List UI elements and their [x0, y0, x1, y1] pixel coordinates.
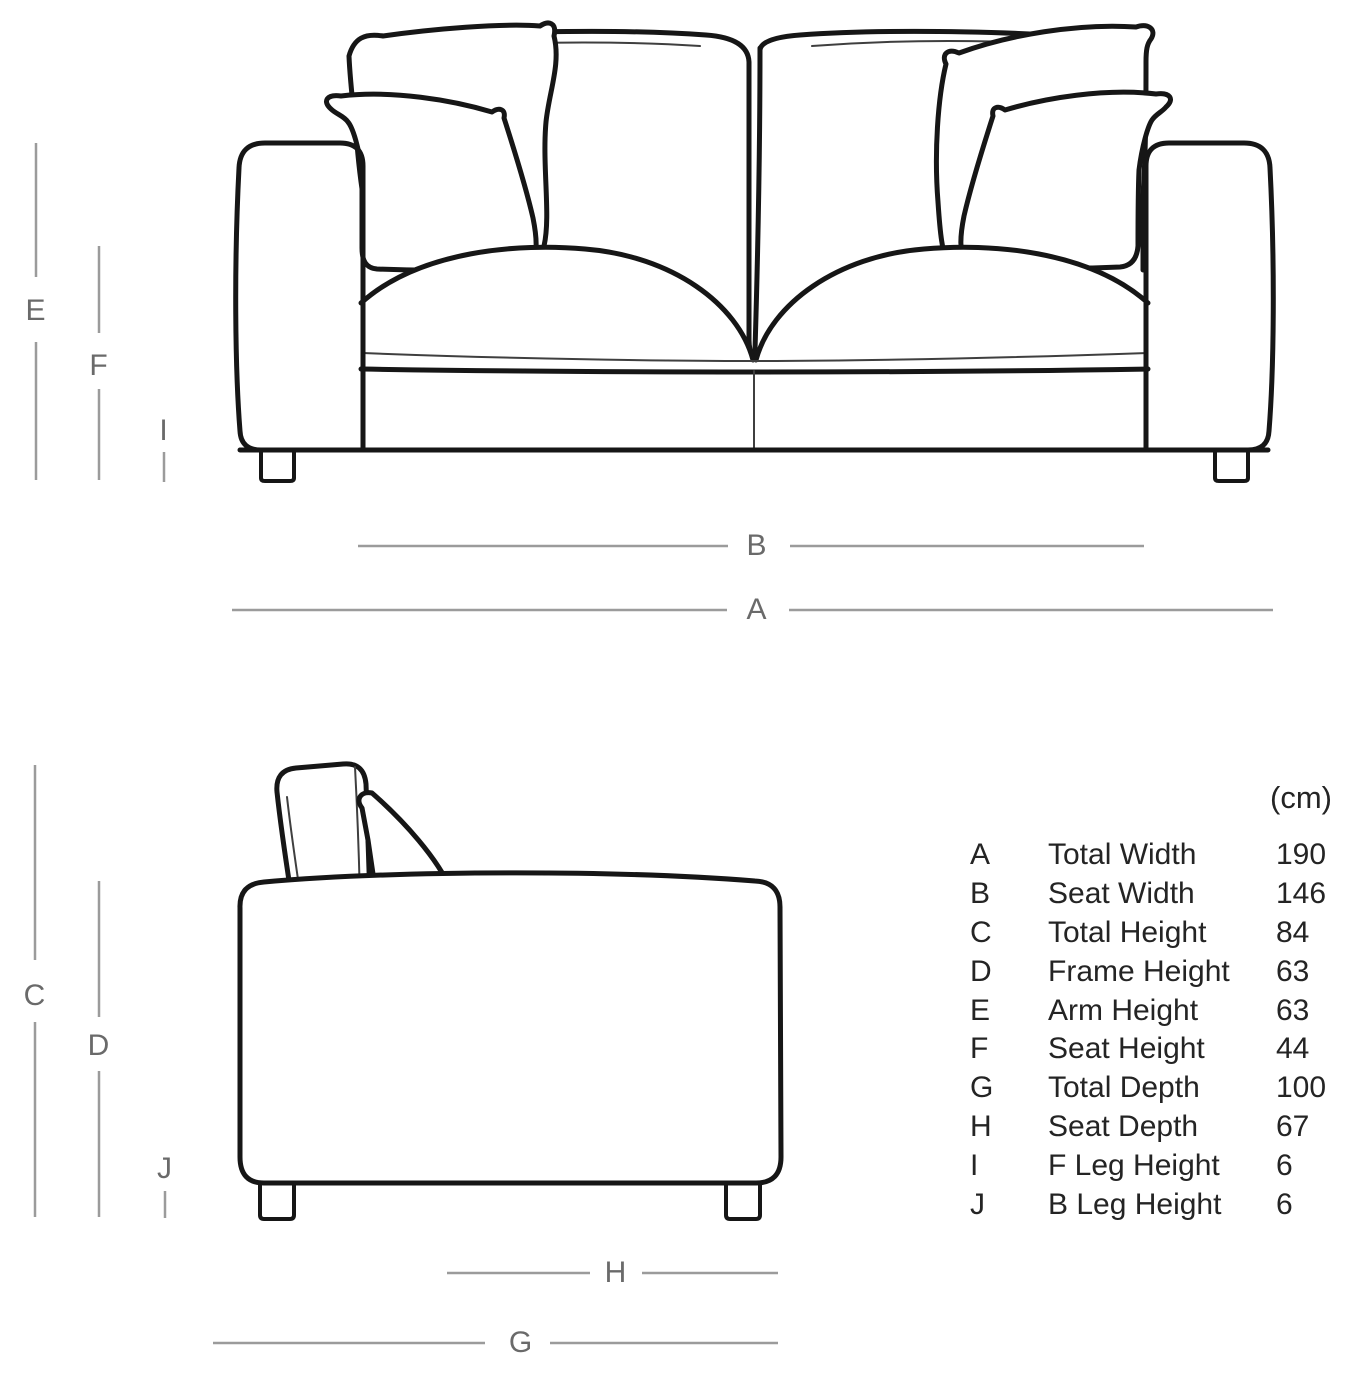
row-letter: B	[970, 877, 1048, 911]
table-row: J B Leg Height 6	[970, 1185, 1338, 1224]
table-row: C Total Height 84	[970, 914, 1338, 953]
row-name: Seat Width	[1048, 877, 1276, 911]
row-letter: G	[970, 1071, 1048, 1105]
row-value: 6	[1276, 1188, 1338, 1222]
row-name: Total Depth	[1048, 1071, 1276, 1105]
row-name: Frame Height	[1048, 955, 1276, 989]
dim-label-b: B	[746, 529, 767, 563]
row-value: 146	[1276, 877, 1338, 911]
row-name: Seat Depth	[1048, 1110, 1276, 1144]
dim-label-i: I	[159, 414, 168, 448]
row-value: 67	[1276, 1110, 1338, 1144]
dim-label-a: A	[746, 593, 767, 627]
row-value: 6	[1276, 1149, 1338, 1183]
table-row: E Arm Height 63	[970, 991, 1338, 1030]
dim-label-g: G	[509, 1326, 533, 1360]
dim-label-d: D	[88, 1029, 111, 1063]
row-value: 44	[1276, 1032, 1338, 1066]
dim-label-c: C	[24, 979, 47, 1013]
row-letter: J	[970, 1188, 1048, 1222]
front-right-leg	[1215, 452, 1248, 481]
row-letter: I	[970, 1149, 1048, 1183]
dim-label-e: E	[25, 294, 46, 328]
row-letter: H	[970, 1110, 1048, 1144]
sofa-front-view	[236, 23, 1274, 481]
side-back-leg	[726, 1185, 760, 1219]
table-row: F Seat Height 44	[970, 1030, 1338, 1069]
row-name: Total Width	[1048, 838, 1276, 872]
row-letter: C	[970, 916, 1048, 950]
table-row: H Seat Depth 67	[970, 1108, 1338, 1147]
row-letter: F	[970, 1032, 1048, 1066]
row-value: 190	[1276, 838, 1338, 872]
row-letter: A	[970, 838, 1048, 872]
row-value: 100	[1276, 1071, 1338, 1105]
row-value: 84	[1276, 916, 1338, 950]
row-name: Total Height	[1048, 916, 1276, 950]
row-name: Arm Height	[1048, 994, 1276, 1028]
table-row: I F Leg Height 6	[970, 1146, 1338, 1185]
dim-label-j: J	[157, 1152, 173, 1186]
table-row: A Total Width 190	[970, 836, 1338, 875]
row-name: Seat Height	[1048, 1032, 1276, 1066]
backrest-center-seam	[753, 48, 760, 358]
row-letter: E	[970, 994, 1048, 1028]
sofa-side-view	[240, 764, 781, 1219]
row-value: 63	[1276, 955, 1338, 989]
front-right-arm	[1146, 143, 1273, 450]
row-name: B Leg Height	[1048, 1188, 1276, 1222]
row-letter: D	[970, 955, 1048, 989]
table-row: G Total Depth 100	[970, 1069, 1338, 1108]
unit-label: (cm)	[1180, 780, 1332, 816]
dimension-table: A Total Width 190 B Seat Width 146 C Tot…	[970, 836, 1338, 1224]
table-row: B Seat Width 146	[970, 875, 1338, 914]
dim-label-f: F	[89, 349, 108, 383]
front-left-leg	[261, 452, 294, 481]
row-name: F Leg Height	[1048, 1149, 1276, 1183]
front-left-arm	[236, 143, 363, 450]
side-body	[240, 873, 781, 1183]
row-value: 63	[1276, 994, 1338, 1028]
scatter-pillow-front-left	[326, 94, 536, 270]
table-row: D Frame Height 63	[970, 952, 1338, 991]
dim-label-h: H	[605, 1256, 628, 1290]
sofa-dimensions-diagram: E F I B A C D J H G (cm) A Total Width 1…	[0, 0, 1357, 1382]
scatter-pillow-front-right	[961, 92, 1171, 268]
side-front-leg	[260, 1185, 294, 1219]
